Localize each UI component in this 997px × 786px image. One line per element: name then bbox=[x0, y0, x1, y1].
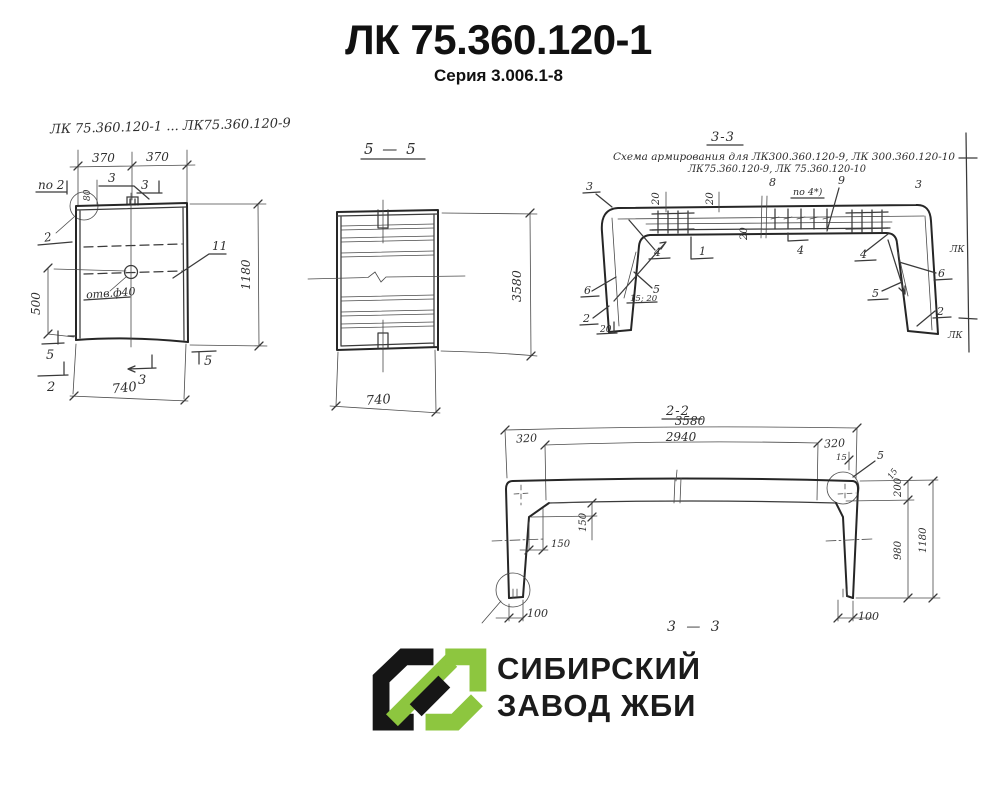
mark-4-flag: 4 bbox=[796, 244, 804, 257]
dim-3580: 3580 bbox=[675, 414, 706, 428]
dim-15-20: 15; 20 bbox=[630, 294, 658, 304]
logo-text: СИБИРСКИЙ ЗАВОД ЖБИ bbox=[497, 650, 701, 724]
drawing-side-view: ЛК 75.360.120-1 ... ЛК75.360.120-9 bbox=[20, 108, 300, 408]
dim-20-a: 20 bbox=[651, 192, 662, 206]
section-mark-5-right: 5 bbox=[204, 354, 212, 369]
blueprint-page: ЛК 75.360.120-1 Серия 3.006.1-8 ЛК 75.36… bbox=[0, 0, 997, 786]
dim-740: 740 bbox=[366, 392, 392, 409]
dim-20-left: 20 bbox=[599, 325, 612, 335]
dim-80: 80 bbox=[83, 189, 93, 201]
logo-line-1: СИБИРСКИЙ bbox=[497, 650, 701, 687]
section-3-3-title: 3-3 bbox=[711, 130, 735, 145]
mark-3-left: 3 bbox=[586, 180, 593, 193]
section-3-3-subtitle-1: Схема армирования для ЛК300.360.120-9, Л… bbox=[613, 151, 955, 163]
section-mark-3a: 3 bbox=[108, 171, 116, 185]
dim-100-right: 100 bbox=[858, 610, 879, 623]
dim-20-b: 20 bbox=[705, 192, 716, 206]
bar-label-2-right: 2 bbox=[936, 305, 944, 318]
label-po2: по 2 bbox=[38, 178, 64, 192]
dim-980: 980 bbox=[893, 540, 904, 560]
dim-100-left: 100 bbox=[527, 607, 548, 620]
dim-320-right: 320 bbox=[824, 437, 846, 451]
mark-3-right: 3 bbox=[915, 178, 922, 191]
dim-370-right: 370 bbox=[146, 150, 169, 164]
bar-label-4-right: 4 bbox=[859, 248, 867, 261]
section-mark-3b: 3 bbox=[141, 178, 149, 192]
page-title: ЛК 75.360.120-1 bbox=[0, 16, 997, 64]
logo-icon bbox=[372, 648, 487, 731]
section-5-5-linework bbox=[308, 159, 537, 416]
dim-1180: 1180 bbox=[918, 527, 929, 553]
section-2-2-linework bbox=[482, 419, 940, 623]
bar-label-8: 8 bbox=[769, 176, 776, 189]
side-view-caption: ЛК 75.360.120-1 ... ЛК75.360.120-9 bbox=[49, 116, 291, 137]
edge-fragment-label-top: ЛК bbox=[949, 245, 966, 255]
dim-15-a: 15 bbox=[836, 453, 847, 463]
dim-200: 200 bbox=[893, 477, 904, 498]
bar-label-6-right: 6 bbox=[938, 267, 945, 280]
dim-3580: 3580 bbox=[509, 270, 524, 302]
dim-150-v: 150 bbox=[578, 512, 589, 532]
drawing-section-2-2: 2-2 bbox=[460, 398, 997, 638]
part-label-11: 11 bbox=[212, 239, 227, 253]
dim-370-left: 370 bbox=[92, 151, 115, 165]
section-mark-2: 2 bbox=[46, 380, 55, 395]
dim-2940: 2940 bbox=[665, 430, 697, 444]
bar-label-5-right: 5 bbox=[872, 287, 879, 300]
section-mark-5-left: 5 bbox=[46, 348, 54, 363]
section-5-5-title: 5 — 5 bbox=[364, 140, 418, 158]
bar-label-9: 9 bbox=[838, 174, 845, 187]
logo-line-2: ЗАВОД ЖБИ bbox=[497, 687, 701, 724]
section-mark-3: 3 bbox=[138, 373, 146, 388]
page-subtitle: Серия 3.006.1-8 bbox=[0, 66, 997, 86]
detail-label-2: 2 bbox=[42, 230, 53, 245]
section-3-3-footer: 3 — 3 bbox=[667, 619, 723, 635]
dim-20-c: 20 bbox=[739, 227, 750, 241]
bar-label-6-left: 6 bbox=[584, 284, 591, 297]
label-po4: по 4*) bbox=[793, 187, 823, 198]
dim-740: 740 bbox=[111, 380, 137, 398]
edge-fragment-label-bottom: ЛК bbox=[947, 331, 964, 341]
bar-label-4-left: 4 bbox=[653, 246, 661, 259]
hole-label: отв.ф40 bbox=[86, 285, 136, 301]
dim-500: 500 bbox=[29, 292, 43, 315]
detail-label-5: 5 bbox=[877, 449, 884, 462]
dim-150-h: 150 bbox=[551, 539, 571, 550]
logo-icon-shapes bbox=[381, 657, 478, 722]
dim-320-left: 320 bbox=[516, 432, 538, 446]
drawing-section-3-3: 3-3 Схема армирования для ЛК300.360.120-… bbox=[575, 125, 997, 360]
drawing-section-5-5: 5 — 5 3580 740 bbox=[298, 128, 550, 420]
bar-label-1: 1 bbox=[699, 245, 706, 258]
dim-1180: 1180 bbox=[239, 259, 253, 290]
bar-label-2-left: 2 bbox=[582, 312, 590, 325]
side-view-linework bbox=[36, 150, 267, 404]
